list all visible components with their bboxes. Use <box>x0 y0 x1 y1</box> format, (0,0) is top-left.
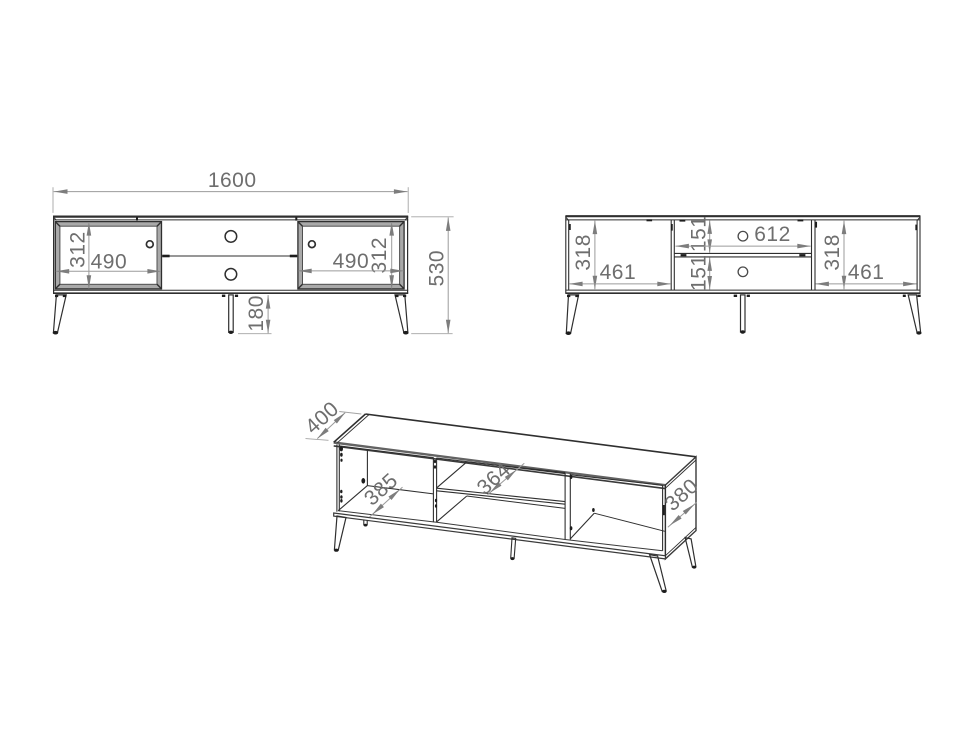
svg-text:180: 180 <box>245 295 268 332</box>
svg-text:490: 490 <box>91 250 128 273</box>
svg-text:530: 530 <box>426 250 449 287</box>
svg-text:461: 461 <box>600 261 637 284</box>
svg-text:490: 490 <box>333 250 370 273</box>
svg-text:312: 312 <box>368 237 391 274</box>
svg-text:151: 151 <box>688 254 711 291</box>
svg-text:318: 318 <box>821 234 844 271</box>
svg-text:1600: 1600 <box>208 169 257 192</box>
svg-text:318: 318 <box>572 234 595 271</box>
svg-text:461: 461 <box>848 261 885 284</box>
svg-text:612: 612 <box>754 223 791 246</box>
svg-text:312: 312 <box>67 231 90 268</box>
